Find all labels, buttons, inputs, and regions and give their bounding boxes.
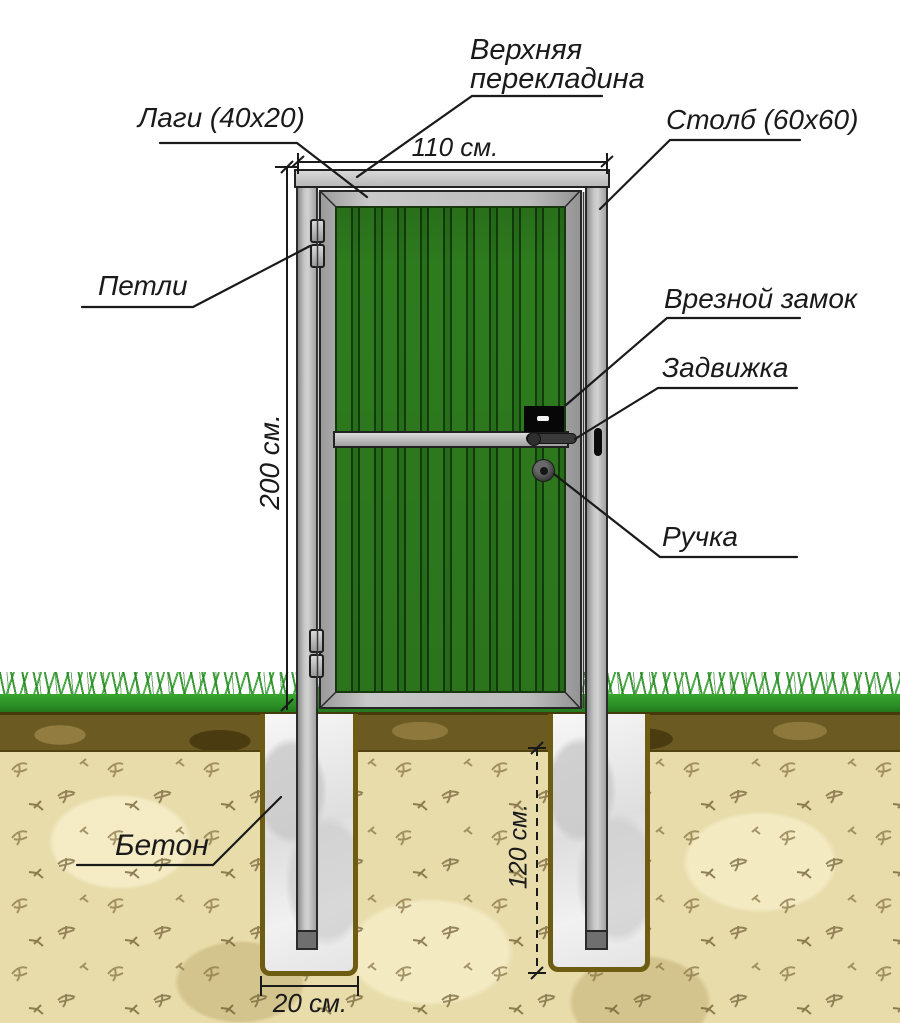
label-hinges: Петли bbox=[98, 270, 188, 302]
subsoil-layer bbox=[0, 752, 900, 1023]
top-crossbar bbox=[294, 169, 610, 188]
dim-120-label: 120 см. bbox=[505, 777, 534, 917]
handle-knob bbox=[532, 459, 555, 482]
leader-latch bbox=[575, 388, 797, 439]
dim-110-label: 110 см. bbox=[405, 132, 505, 163]
lock-slot bbox=[537, 416, 549, 421]
leader-post bbox=[600, 140, 800, 209]
lock-keeper-slot bbox=[594, 428, 602, 456]
label-handle: Ручка bbox=[662, 521, 738, 553]
bottom-hinge-upper bbox=[309, 629, 324, 653]
topsoil-layer bbox=[0, 712, 900, 752]
label-concrete: Бетон bbox=[115, 829, 209, 863]
corrugated-panel bbox=[335, 206, 566, 693]
handle-hole bbox=[540, 467, 548, 475]
right-post-tip bbox=[587, 930, 606, 948]
gate-installation-diagram: Верхняя перекладина Лаги (40х20) Столб (… bbox=[0, 0, 900, 1023]
label-mortise-lock: Врезной замок bbox=[664, 283, 857, 315]
left-post-tip bbox=[298, 930, 316, 948]
latch-knob bbox=[527, 432, 541, 446]
label-top-crossbar: Верхняя перекладина bbox=[470, 36, 650, 94]
top-hinge-upper bbox=[310, 219, 325, 243]
dim-20-label: 20 см. bbox=[260, 988, 360, 1019]
top-hinge-lower bbox=[310, 244, 325, 268]
mortise-lock bbox=[524, 406, 564, 432]
dim-200-label: 200 см. bbox=[254, 377, 286, 547]
label-post: Столб (60х60) bbox=[666, 104, 858, 136]
bottom-hinge-lower bbox=[309, 654, 324, 678]
label-latch: Задвижка bbox=[662, 352, 788, 384]
right-post bbox=[585, 186, 608, 950]
left-post bbox=[296, 186, 318, 950]
label-lags: Лаги (40х20) bbox=[138, 102, 305, 134]
gate-leaf-frame bbox=[319, 190, 582, 709]
